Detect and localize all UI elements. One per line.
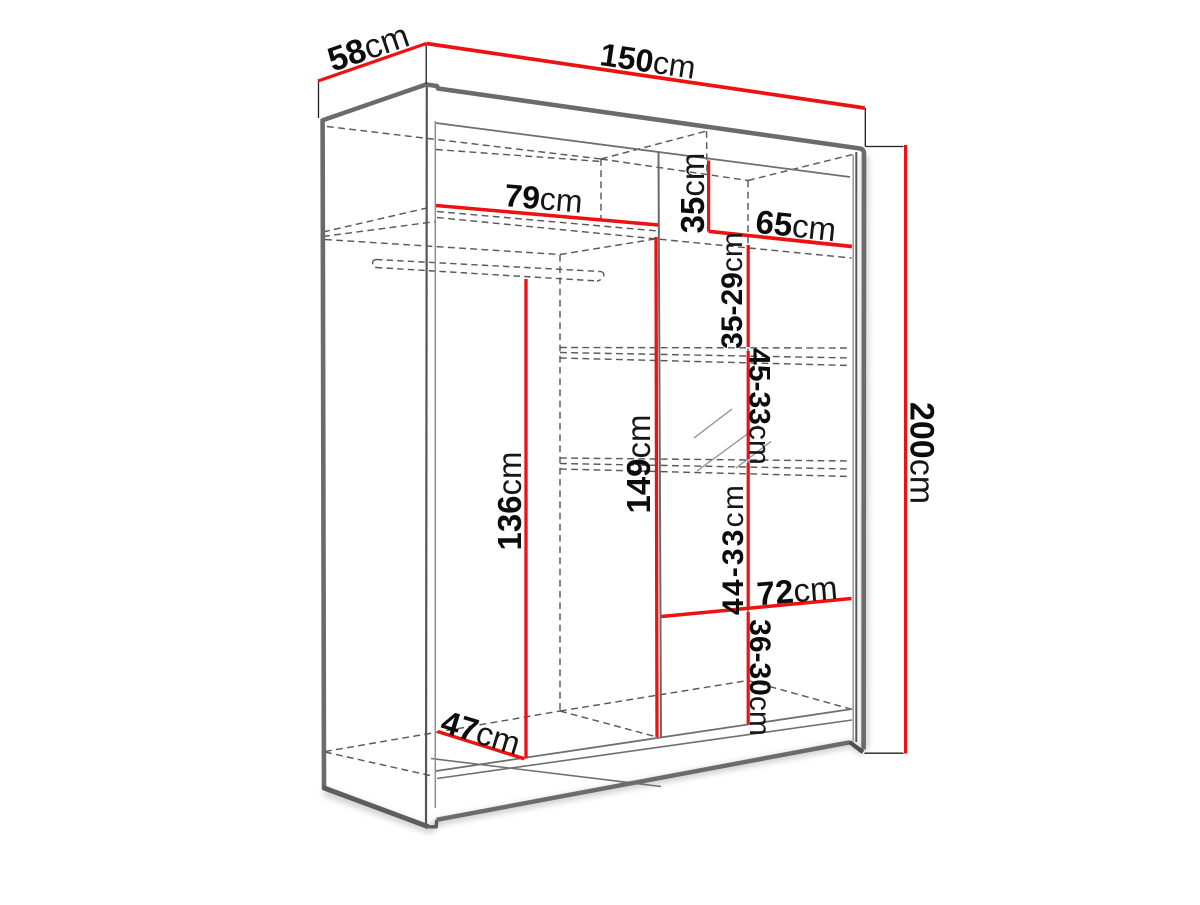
svg-text:44-33cm: 44-33cm	[717, 483, 750, 615]
svg-text:149cm: 149cm	[620, 414, 657, 513]
svg-text:35cm: 35cm	[674, 153, 711, 234]
svg-text:35-29cm: 35-29cm	[716, 232, 749, 349]
svg-text:72cm: 72cm	[755, 568, 839, 612]
svg-text:36-30cm: 36-30cm	[744, 619, 777, 736]
svg-text:200cm: 200cm	[903, 402, 941, 504]
svg-text:136cm: 136cm	[491, 451, 528, 550]
svg-text:79cm: 79cm	[503, 177, 584, 220]
svg-text:45-33cm: 45-33cm	[743, 348, 776, 465]
